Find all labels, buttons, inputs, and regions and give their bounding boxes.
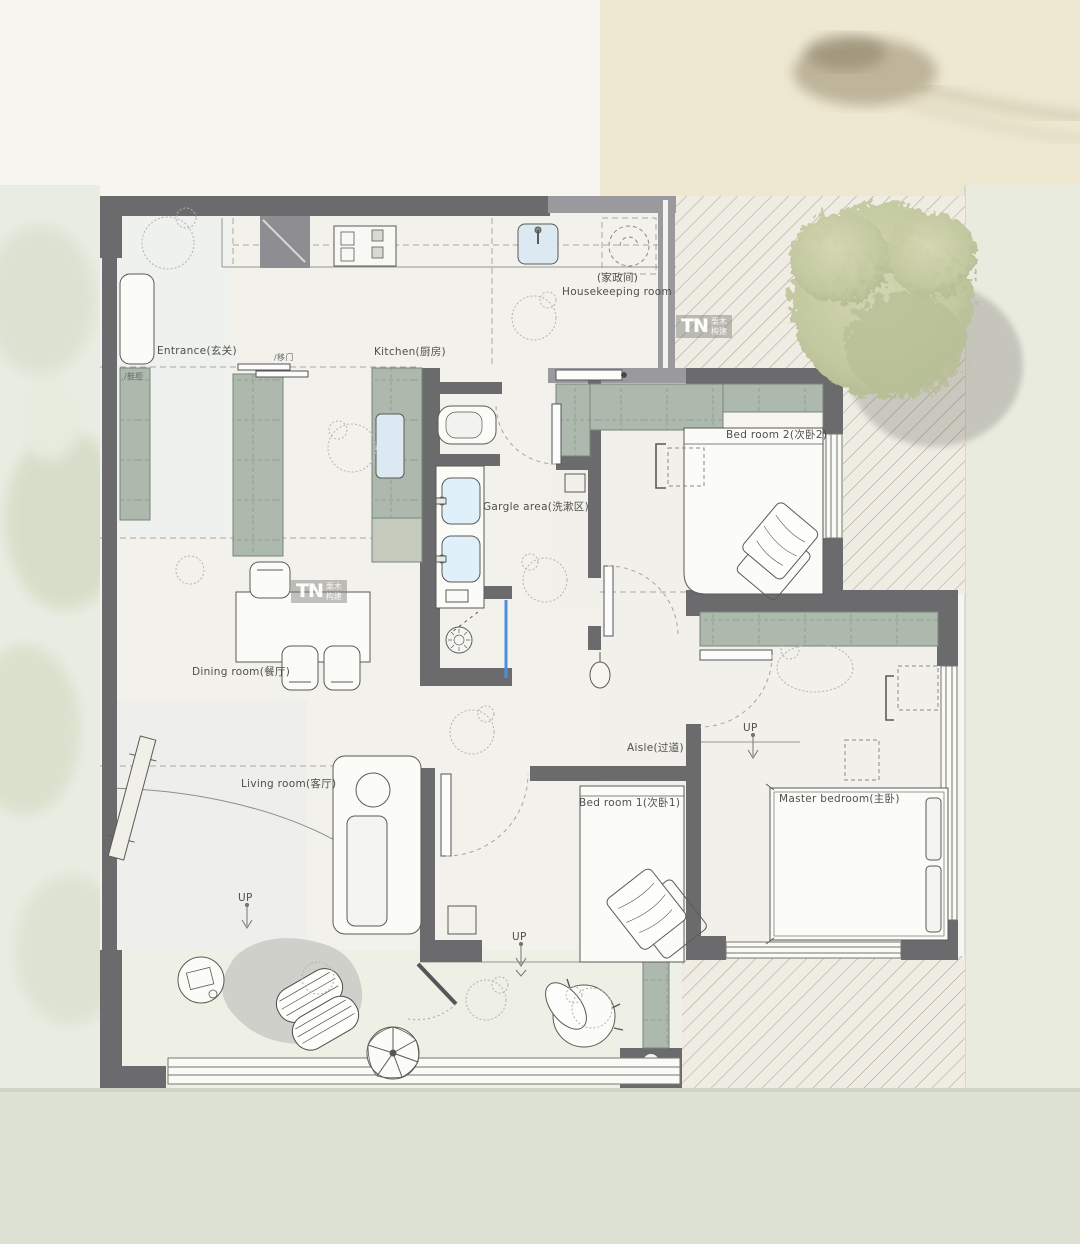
up-label-balcony: UP: [512, 931, 527, 943]
up-label-living: UP: [238, 892, 253, 904]
toilet: [438, 406, 496, 444]
entrance-slider-b: [256, 371, 308, 377]
watermark-tn: TN: [681, 317, 708, 336]
room-label-dining: Dining room(餐厅): [192, 664, 290, 679]
shoe-cabinet: [120, 368, 150, 520]
annotation-shoe-cabinet: /鞋柜: [124, 371, 144, 382]
master-door-leaf: [700, 650, 772, 660]
room-label-housekeeping-cn: (家政间): [597, 270, 638, 285]
floorplan-canvas: Entrance(玄关) /鞋柜 /移门 Kitchen(厨房) (家政间) H…: [0, 0, 1080, 1244]
watermark-logo-2: TN 栗木 构建: [291, 580, 347, 603]
watermark-cn-bottom: 构建: [711, 327, 727, 336]
corridor-slider-leaf: [556, 370, 622, 380]
entrance-slider-a: [238, 364, 290, 370]
side-table: [178, 957, 224, 1003]
sink-2: [436, 536, 480, 582]
annotation-sliding-door: /移门: [274, 352, 294, 363]
bedroom1-door-leaf: [441, 774, 451, 856]
room-label-bedroom2: Bed room 2(次卧2): [726, 427, 827, 442]
room-label-master: Master bedroom(主卧): [779, 791, 900, 806]
room-label-aisle: Aisle(过道): [627, 740, 684, 755]
watermark-cn: 栗木 构建: [711, 317, 727, 335]
watermark-logo-1: TN 栗木 构建: [676, 315, 732, 338]
room-label-housekeeping-en: Housekeeping room: [562, 286, 672, 298]
watermark-cn-top: 栗木: [711, 317, 727, 326]
master-bed: [766, 784, 948, 944]
bedroom2-door-leaf: [604, 566, 613, 636]
potted-flower: [367, 1027, 419, 1079]
watermark-cn-bottom: 构建: [326, 592, 342, 601]
sofa: [333, 756, 421, 934]
room-label-living: Living room(客厅): [241, 776, 336, 791]
room-label-bedroom1: Bed room 1(次卧1): [579, 795, 680, 810]
entrance-bench: [120, 274, 154, 364]
cooktop: [334, 226, 396, 266]
watermark-tn: TN: [296, 582, 323, 601]
room-label-kitchen: Kitchen(厨房): [374, 344, 446, 359]
watermark-cn-top: 栗木: [326, 582, 342, 591]
kitchen-sink: [518, 224, 558, 264]
floorplan-drawing: [0, 0, 1080, 1244]
sink-1: [436, 478, 480, 524]
up-label-master: UP: [743, 722, 758, 734]
room-label-gargle: Gargle area(洗漱区): [483, 499, 589, 514]
corridor-fixture: [590, 662, 610, 688]
room-label-entrance: Entrance(玄关): [157, 343, 237, 358]
gargle-door-leaf: [552, 404, 561, 464]
bed2: [684, 428, 826, 602]
watermark-cn: 栗木 构建: [326, 582, 342, 600]
kitchen-sink-2: [376, 414, 404, 478]
